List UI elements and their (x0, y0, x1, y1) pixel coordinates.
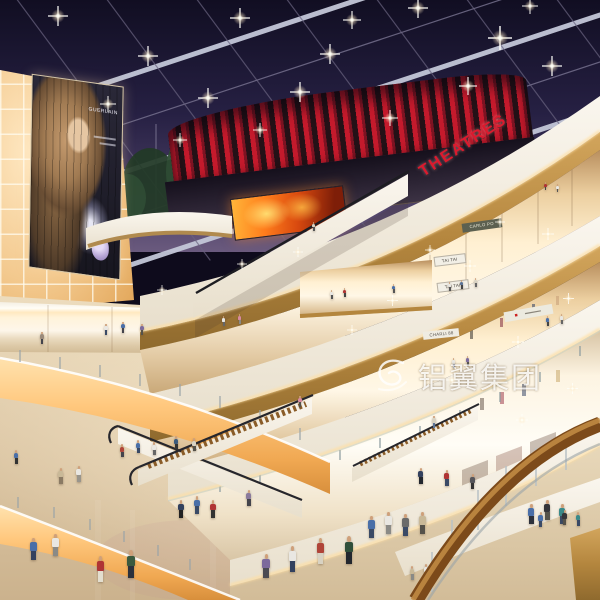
foreground-handrail-layer (0, 0, 600, 600)
watermark: 铝翼集团 (372, 350, 552, 402)
wooden-handrail (416, 424, 600, 600)
mall-atrium-rendering: GUERLAIN THEATRES (0, 0, 600, 600)
watermark-swirl-logo (372, 356, 412, 396)
watermark-text: 铝翼集团 (418, 355, 542, 397)
